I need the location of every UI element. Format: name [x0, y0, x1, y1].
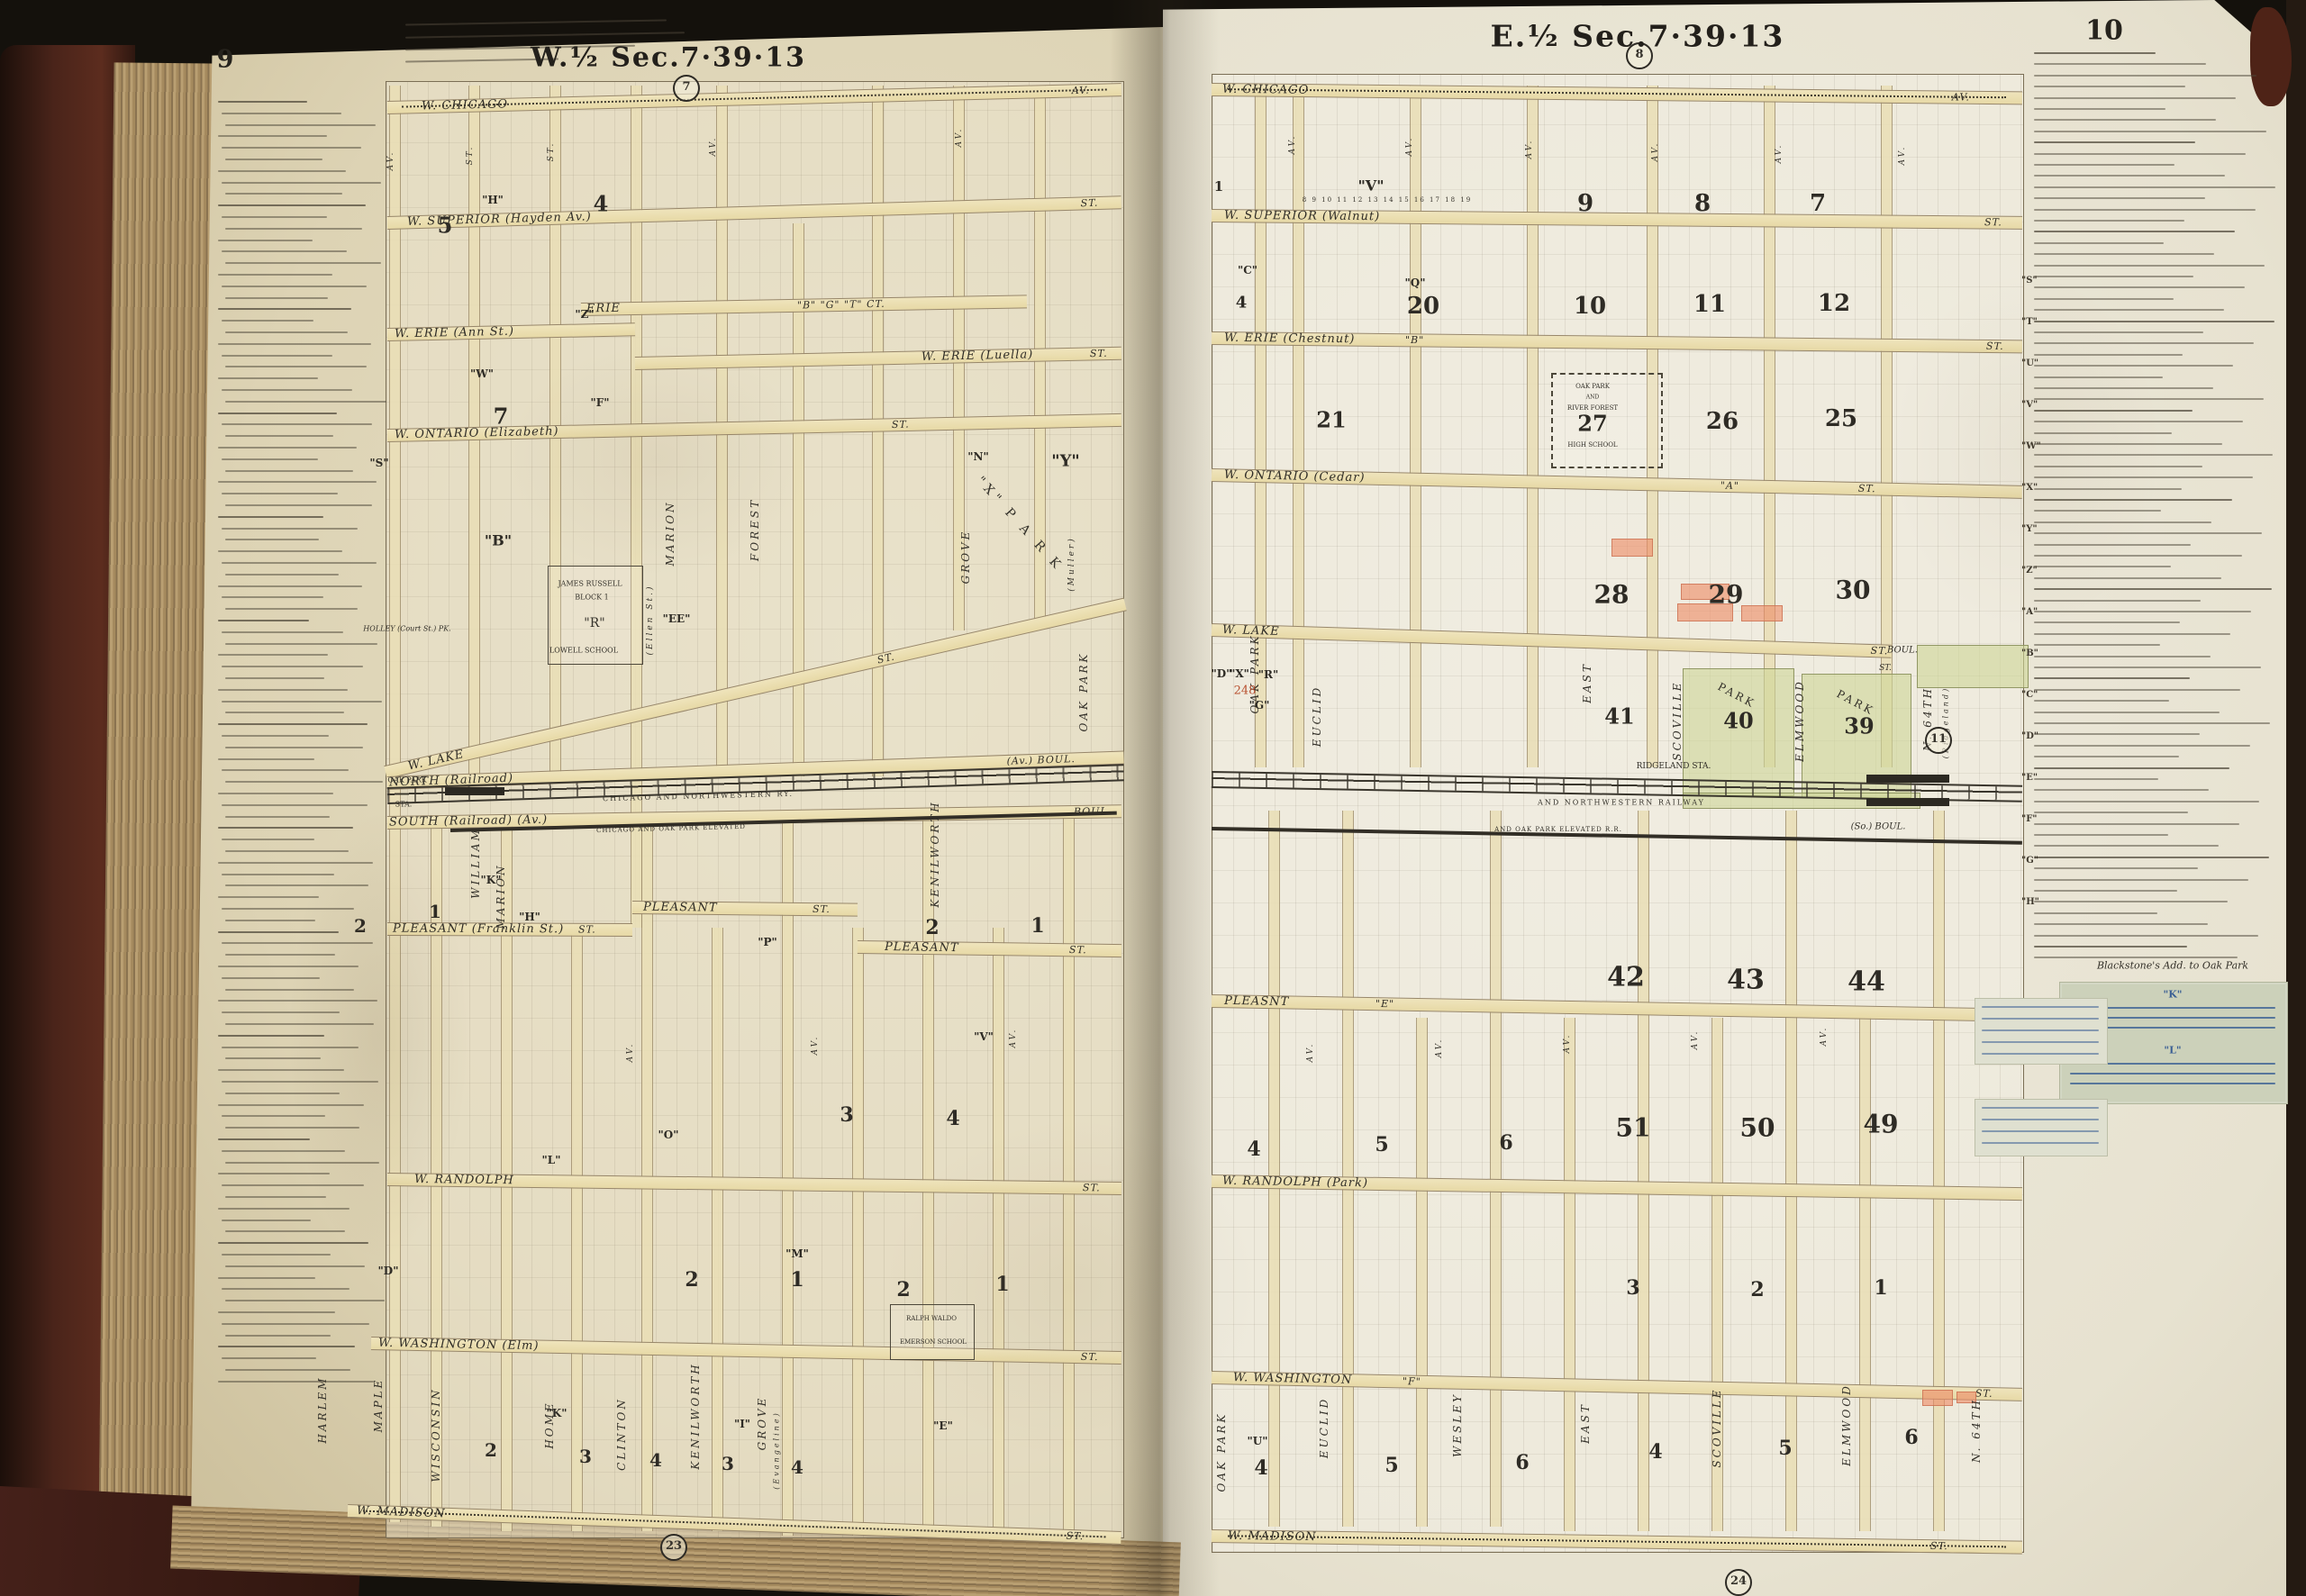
handwritten-note-line: [222, 147, 361, 149]
handwritten-note-line: [222, 839, 314, 840]
handwritten-note-line: [2034, 521, 2211, 523]
block-number: 4: [1648, 1440, 1662, 1464]
pasted-note-title-k: "K": [2163, 989, 2182, 1001]
handwritten-note-line: [222, 701, 382, 703]
station-platform: [445, 787, 504, 795]
subdivision-letter: "V": [974, 1030, 994, 1043]
handwritten-note-line: [225, 435, 333, 437]
building-block-outline: [890, 1304, 975, 1360]
street-label-vertical: AV.: [1009, 1028, 1018, 1048]
handwritten-note-line: [222, 389, 352, 391]
block-number: 28: [1594, 580, 1630, 610]
block-number: 40: [1723, 708, 1753, 734]
handwritten-note-line: [218, 723, 368, 725]
book-gutter: [1110, 0, 1220, 1596]
block-number: 1: [790, 1268, 803, 1292]
handwritten-note-line: [222, 804, 368, 806]
pasted-slip-line: [1982, 1130, 2099, 1132]
street-suffix: ST.: [1066, 1529, 1084, 1542]
street-label-vertical: MAPLE: [372, 1378, 385, 1433]
street-suffix: ST.: [1069, 944, 1087, 956]
block-number: 4: [791, 1456, 803, 1478]
pasted-note-line: [2070, 1083, 2275, 1084]
handwritten-note-line: [218, 1138, 310, 1140]
park-area: [1917, 645, 2029, 688]
note-letter-marker: "D": [2021, 731, 2038, 741]
handwritten-note-line: [2034, 131, 2266, 132]
street-label-vertical: KENILWORTH: [929, 800, 941, 907]
pasted-slip-line: [1982, 1029, 2099, 1031]
handwritten-note-line: [2034, 722, 2270, 724]
handwritten-note-line: [2034, 197, 2205, 199]
map-annotation: HOLLEY (Court St.) PK.: [363, 625, 450, 633]
block-number: 26: [1706, 408, 1739, 435]
handwritten-note-line: [2034, 656, 2211, 657]
handwritten-note-line: [2034, 331, 2203, 333]
pasted-note-title-l: "L": [2164, 1045, 2181, 1056]
map-annotation: RIVER FOREST: [1567, 404, 1618, 412]
street-label-vertical: KENILWORTH: [689, 1362, 702, 1469]
handwritten-note-line: [218, 343, 371, 345]
handwritten-note-line: [2034, 867, 2198, 869]
note-letter-marker: "A": [2021, 607, 2038, 617]
block-number: 30: [1836, 576, 1871, 605]
street-suffix: ST.: [1080, 196, 1098, 209]
street-band-vertical: [571, 928, 583, 1531]
subdivision-letter: "N": [967, 450, 988, 463]
handwritten-note-line: [222, 1011, 340, 1013]
subdivision-letter: "Q": [1405, 277, 1426, 289]
handwritten-note-line: [222, 735, 329, 737]
handwritten-note-line: [222, 355, 332, 357]
map-annotation: EMERSON SCHOOL: [900, 1338, 967, 1346]
subdivision-letter: "G": [1249, 699, 1270, 712]
handwritten-note-line: [225, 1196, 326, 1198]
handwritten-note-line: [218, 1242, 368, 1244]
handwritten-note-line: [225, 262, 381, 264]
street-band-vertical: [782, 815, 794, 1536]
street-label-vertical: OAK PARK: [1215, 1412, 1228, 1492]
handwritten-note-line: [222, 458, 318, 460]
street-letter: "A": [1720, 479, 1739, 491]
handwritten-note-line: [2034, 321, 2274, 322]
street-band-vertical: [1293, 86, 1304, 767]
block-number: 4: [649, 1449, 662, 1471]
handwritten-note-line: [2034, 700, 2169, 702]
handwritten-note-line: [222, 666, 363, 667]
handwritten-note-line: [2034, 164, 2174, 166]
block-number: 1: [1030, 914, 1044, 938]
block-number: 44: [1848, 966, 1885, 998]
handwritten-note-line: [222, 1220, 311, 1221]
street-label-vertical: SCOVILLE: [1711, 1387, 1723, 1467]
station-platform: [1866, 798, 1949, 806]
street-letter: "B": [1405, 333, 1424, 345]
block-number: 3: [722, 1453, 734, 1474]
subdivision-letter: "L": [542, 1154, 561, 1166]
map-annotation: AND NORTHWESTERN RAILWAY: [1538, 799, 1705, 807]
handwritten-note-line: [225, 1265, 365, 1267]
handwritten-note-line: [2034, 745, 2250, 747]
street-band-vertical: [852, 928, 864, 1536]
block-number: 5: [1778, 1437, 1792, 1460]
handwritten-note-line: [222, 631, 343, 633]
handwritten-note-line: [2034, 52, 2156, 54]
handwritten-note-line: [225, 159, 322, 160]
handwritten-note-line: [2034, 86, 2185, 87]
handwritten-note-line: [2034, 443, 2222, 445]
handwritten-note-line: [225, 124, 376, 126]
street-label: W. ERIE (Ann St.): [395, 324, 514, 340]
note-letter-marker: "G": [2021, 856, 2038, 866]
block-number: 2: [685, 1268, 698, 1292]
subdivision-letter: "R": [1258, 668, 1278, 681]
subdivision-letter: "P": [758, 936, 777, 948]
handwritten-note-line: [225, 954, 335, 956]
note-letter-marker: "F": [2021, 814, 2038, 824]
pasted-slip-line: [1982, 1053, 2099, 1055]
handwritten-note-line: [2034, 555, 2242, 557]
street-label: W. RANDOLPH (Park): [1222, 1174, 1368, 1190]
handwritten-note-line: [225, 747, 363, 748]
street-label-vertical: OAK PARK: [1077, 652, 1090, 732]
handwritten-note-line: [2034, 644, 2160, 646]
handwritten-note-line: [222, 1184, 364, 1186]
map-annotation: RIDGELAND STA.: [1637, 762, 1711, 771]
map-annotation: AND: [1586, 394, 1599, 401]
handwritten-note-line: [225, 1300, 385, 1301]
handwritten-note-line: [225, 1023, 374, 1025]
street-suffix: ST.: [1870, 644, 1888, 657]
map-annotation: (So.) BOUL.: [1851, 822, 1906, 832]
block-number: 1: [1874, 1276, 1887, 1300]
handwritten-note-line: [2034, 108, 2165, 110]
subdivision-letter: "I": [734, 1418, 750, 1430]
highlighted-lot: [1611, 539, 1653, 557]
map-annotation: ST.: [1879, 664, 1892, 673]
handwritten-note-line: [218, 793, 333, 794]
handwritten-note-line: [2034, 220, 2184, 222]
street-label-vertical: AV.: [1775, 143, 1784, 164]
subdivision-letter: "K": [547, 1407, 567, 1419]
subdivision-letter: "D": [378, 1265, 399, 1277]
handwritten-note-line: [218, 101, 307, 103]
handwritten-note-line: [218, 1311, 335, 1313]
handwritten-note-line: [2034, 879, 2248, 881]
street-letter: "E": [1375, 997, 1394, 1009]
block-number: 11: [1693, 291, 1726, 318]
handwritten-note-line: [2034, 432, 2172, 434]
handwritten-note-line: [218, 516, 323, 518]
handwritten-note-line: [2034, 488, 2182, 490]
block-number: 2: [1750, 1278, 1764, 1301]
handwritten-note-line: [218, 170, 346, 172]
street-label-vertical: ELMWOOD: [1840, 1383, 1853, 1466]
street-suffix: ST.: [1984, 216, 2002, 228]
street-suffix: ST.: [1081, 1350, 1099, 1362]
subdivision-letter: "B": [485, 532, 512, 549]
handwritten-note-line: [222, 528, 358, 530]
handwritten-note-line: [2034, 186, 2275, 188]
street-label: W. WASHINGTON: [1233, 1371, 1353, 1387]
book-cover-right: [2286, 0, 2306, 1596]
handwritten-note-line: [2034, 577, 2221, 579]
handwritten-note-line: [218, 377, 318, 379]
photo-stage: W. CHICAGOAV.W. SUPERIOR (Hayden Av.)ST.…: [0, 0, 2306, 1596]
note-letter-marker: "W": [2021, 441, 2041, 451]
street-label: PLEASANT: [643, 900, 718, 914]
handwritten-note-line: [2034, 309, 2224, 311]
street-label-vertical: WESLEY: [1451, 1392, 1464, 1457]
block-number: 5: [1385, 1454, 1398, 1477]
map-annotation: OAK PARK: [1575, 383, 1610, 390]
circled-reference: 23: [660, 1534, 687, 1561]
block-number: 20: [1407, 293, 1439, 320]
handwritten-note-line: [405, 32, 685, 38]
street-label-vertical: (Evangeline): [773, 1410, 781, 1489]
pasted-slip-line: [1982, 1041, 2099, 1043]
block-number: 51: [1616, 1113, 1651, 1143]
handwritten-note-line: [218, 240, 313, 241]
street-band-vertical: [1410, 86, 1421, 767]
block-number: 1: [995, 1273, 1009, 1296]
handwritten-note-line: [2034, 421, 2243, 422]
subdivision-letter: "K": [481, 874, 502, 886]
block-number: 2: [485, 1439, 497, 1461]
handwritten-note-line: [222, 113, 341, 114]
handwritten-note-line: [225, 920, 315, 921]
map-annotation: RALPH WALDO: [906, 1315, 957, 1322]
block-number: 7: [1810, 190, 1826, 217]
handwritten-note-line: [225, 1162, 379, 1164]
note-letter-marker: "B": [2021, 648, 2038, 658]
handwritten-note-line: [218, 758, 314, 760]
map-annotation: 8 9 10 11 12 13 14 15 16 17 18 19: [1303, 196, 1472, 204]
handwritten-note-line: [218, 1069, 344, 1071]
handwritten-note-line: [218, 1277, 315, 1279]
handwritten-note-line: [218, 585, 362, 587]
street-suffix: ST.: [1986, 340, 2004, 351]
street-label-vertical: AV.: [1563, 1033, 1572, 1054]
handwritten-note-line: [218, 204, 366, 206]
handwritten-note-line: [225, 504, 372, 506]
handwritten-note-line: [225, 228, 362, 230]
street-label-vertical: WISCONSIN: [430, 1387, 442, 1482]
map-area-rt: [1212, 74, 2024, 1553]
street-suffix: ST.: [1083, 1182, 1101, 1193]
handwritten-note-line: [225, 297, 328, 299]
street-suffix: "B" "G" "T" CT.: [797, 297, 885, 311]
block-number: 41: [1604, 703, 1634, 730]
street-label: PLEASANT: [885, 940, 959, 955]
handwritten-note-line: [2034, 935, 2258, 937]
note-letter-marker: "E": [2021, 773, 2038, 783]
handwritten-note-line: [2034, 242, 2164, 244]
circled-reference: 11: [1925, 727, 1952, 754]
street-label-vertical: ELMWOOD: [1793, 679, 1806, 762]
street-label-vertical: (Ellen St.): [646, 585, 655, 656]
map-annotation: JAMES RUSSELL: [558, 580, 622, 588]
handwritten-note-line: [2034, 689, 2240, 691]
block-number: 42: [1607, 962, 1645, 993]
street-label-vertical: HARLEM: [316, 1375, 329, 1443]
pasted-note-line: [2070, 1073, 2275, 1075]
block-number: 2: [925, 916, 939, 939]
handwritten-note-line: [225, 470, 353, 472]
handwritten-note-line: [218, 896, 319, 898]
handwritten-note-line: [2034, 97, 2236, 99]
handwritten-note-line: [218, 447, 357, 449]
handwritten-note-line: [2034, 834, 2168, 836]
handwritten-note-line: [2034, 823, 2239, 825]
street-band-vertical: [1063, 815, 1075, 1536]
subdivision-letter: "Y": [1051, 452, 1080, 471]
handwritten-note-line: [2034, 153, 2246, 155]
block-number: 1: [429, 901, 441, 922]
note-letter-marker: "V": [2021, 400, 2038, 410]
street-band-vertical: [1527, 86, 1539, 767]
block-number: 3: [579, 1446, 592, 1467]
subdivision-letter: "U": [1248, 1435, 1268, 1447]
handwritten-note-line: [2034, 466, 2202, 467]
street-band-vertical: [1638, 811, 1649, 1531]
handwritten-note-line: [222, 286, 367, 287]
map-annotation: STA.: [395, 801, 413, 809]
handwritten-note-line: [2034, 812, 2188, 813]
pasted-slip-line: [1982, 1107, 2099, 1109]
handwritten-note-line: [222, 182, 381, 184]
block-number: 27: [1577, 411, 1607, 437]
handwritten-note-line: [218, 1381, 374, 1383]
handwritten-note-line: [2034, 75, 2256, 77]
note-letter-marker: "U": [2021, 358, 2038, 368]
handwritten-note-line: [222, 1150, 345, 1152]
street-label-vertical: AV.: [709, 136, 718, 157]
street-band-vertical: [1933, 811, 1945, 1531]
handwritten-note-line: [405, 19, 667, 25]
handwritten-note-line: [2034, 410, 2193, 412]
street-label-vertical: AV.: [1525, 139, 1534, 159]
handwritten-note-line: [218, 862, 373, 864]
block-number: 4: [1247, 1138, 1260, 1161]
block-number: 2: [354, 915, 367, 937]
handwritten-note-line: [2034, 253, 2214, 255]
note-letter-marker: "C": [2021, 690, 2038, 700]
street-band-vertical: [1859, 1018, 1871, 1531]
street-label: W. ERIE (Luella): [921, 348, 1034, 364]
street-label: W. WASHINGTON (Elm): [378, 1336, 540, 1352]
handwritten-note-line: [218, 689, 348, 691]
street-label: W. ERIE (Chestnut): [1224, 331, 1356, 346]
street-suffix: ST.: [876, 650, 895, 666]
handwritten-note-line: [225, 677, 324, 679]
handwritten-note-line: [2034, 532, 2262, 534]
street-band-horizontal: PLEASANT (Franklin St.)ST.: [387, 922, 632, 937]
pasted-slip-line: [1982, 1018, 2099, 1020]
subdivision-letter: "X": [1230, 667, 1249, 680]
handwritten-note-line: [2034, 923, 2208, 925]
subdivision-letter: "H": [519, 911, 540, 923]
handwritten-note-line: [2034, 600, 2201, 602]
map-annotation: LOWELL SCHOOL: [549, 647, 618, 655]
block-number: 3: [840, 1103, 853, 1127]
handwritten-note-line: [2034, 265, 2265, 267]
handwritten-note-line: [2034, 499, 2232, 501]
block-number: 4: [946, 1107, 959, 1130]
block-number: 6: [1515, 1451, 1529, 1474]
subdivision-letter: "M": [785, 1247, 809, 1260]
street-suffix: ST.: [1090, 347, 1108, 358]
street-label-vertical: EUCLID: [1318, 1397, 1330, 1458]
street-suffix: ST.: [892, 418, 910, 430]
street-label-vertical: ST.: [466, 145, 475, 166]
map-annotation: "R": [584, 616, 604, 630]
subdivision-letter: "S": [369, 457, 388, 469]
handwritten-note-line: [2034, 365, 2233, 367]
handwritten-note-line: [218, 931, 339, 933]
subdivision-letter: "W": [470, 367, 494, 380]
handwritten-note-line: [225, 1093, 340, 1094]
street-band-vertical: [712, 928, 723, 1531]
pasted-slip-line: [1982, 1142, 2099, 1144]
note-letter-marker: "Z": [2021, 566, 2038, 576]
street-suffix: ST.: [813, 902, 831, 914]
street-label: W. MADISON: [1228, 1528, 1317, 1543]
street-label-vertical: AV.: [1898, 145, 1907, 166]
street-band-vertical: [1564, 1018, 1575, 1531]
street-suffix: AV.: [1952, 91, 1970, 103]
handwritten-note-line: [2034, 611, 2251, 612]
street-suffix: (Av.) BOUL.: [1006, 753, 1076, 767]
handwritten-note-line: [2034, 778, 2158, 780]
handwritten-note-line: [225, 1127, 359, 1129]
note-letter-marker: "Y": [2021, 524, 2038, 534]
note-letter-marker: "S": [2021, 276, 2038, 286]
circled-reference: 24: [1725, 1569, 1752, 1596]
handwritten-note-line: [2034, 588, 2272, 590]
street-label-vertical: EAST: [1581, 662, 1593, 703]
handwritten-note-line: [225, 608, 358, 610]
block-number: 4: [594, 191, 609, 217]
handwritten-note-line: [225, 331, 348, 333]
handwritten-note-line: [225, 781, 383, 783]
subdivision-letter: "E": [933, 1419, 953, 1432]
street-suffix: ST.: [1858, 482, 1876, 494]
handwritten-note-line: [2034, 712, 2220, 713]
block-number: 5: [438, 213, 453, 239]
street-label-vertical: AV.: [626, 1042, 635, 1063]
handwritten-note-line: [2034, 276, 2193, 277]
block-number: 7: [494, 404, 509, 430]
handwritten-note-line: [2034, 633, 2230, 635]
block-number: 6: [1499, 1131, 1512, 1155]
street-label-vertical: AV.: [955, 127, 964, 148]
handwritten-note-line: [2034, 376, 2163, 378]
handwritten-note-line: [2034, 946, 2187, 948]
handwritten-note-line: [222, 1323, 369, 1325]
pasted-slip-line: [1982, 1119, 2099, 1120]
handwritten-note-line: [222, 562, 377, 564]
right-title: E.½ Sec.7·39·13: [1491, 19, 1785, 54]
circled-reference: 7: [673, 75, 700, 102]
street-label: PLEASNT: [1224, 993, 1289, 1008]
street-band-vertical: [1342, 811, 1354, 1527]
street-label-vertical: EAST: [1579, 1402, 1592, 1444]
handwritten-note-line: [222, 977, 320, 979]
block-number: 49: [1864, 1110, 1899, 1139]
map-annotation: 248: [1234, 685, 1257, 698]
block-number: 8: [1694, 190, 1711, 217]
